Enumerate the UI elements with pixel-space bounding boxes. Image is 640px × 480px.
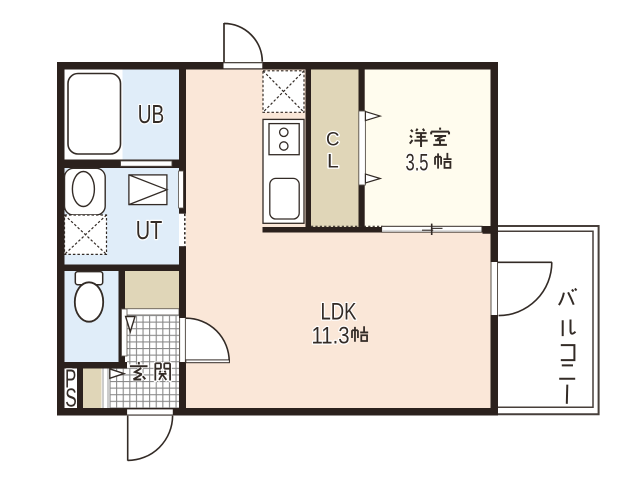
svg-text:11.3: 11.3 (312, 323, 350, 350)
svg-text:LDK: LDK (321, 299, 357, 326)
svg-text:C: C (326, 130, 340, 151)
svg-text:UB: UB (138, 99, 165, 129)
svg-text:S: S (65, 383, 77, 413)
svg-text:UT: UT (136, 215, 163, 245)
svg-text:3.5: 3.5 (406, 150, 429, 177)
svg-text:L: L (327, 152, 339, 173)
